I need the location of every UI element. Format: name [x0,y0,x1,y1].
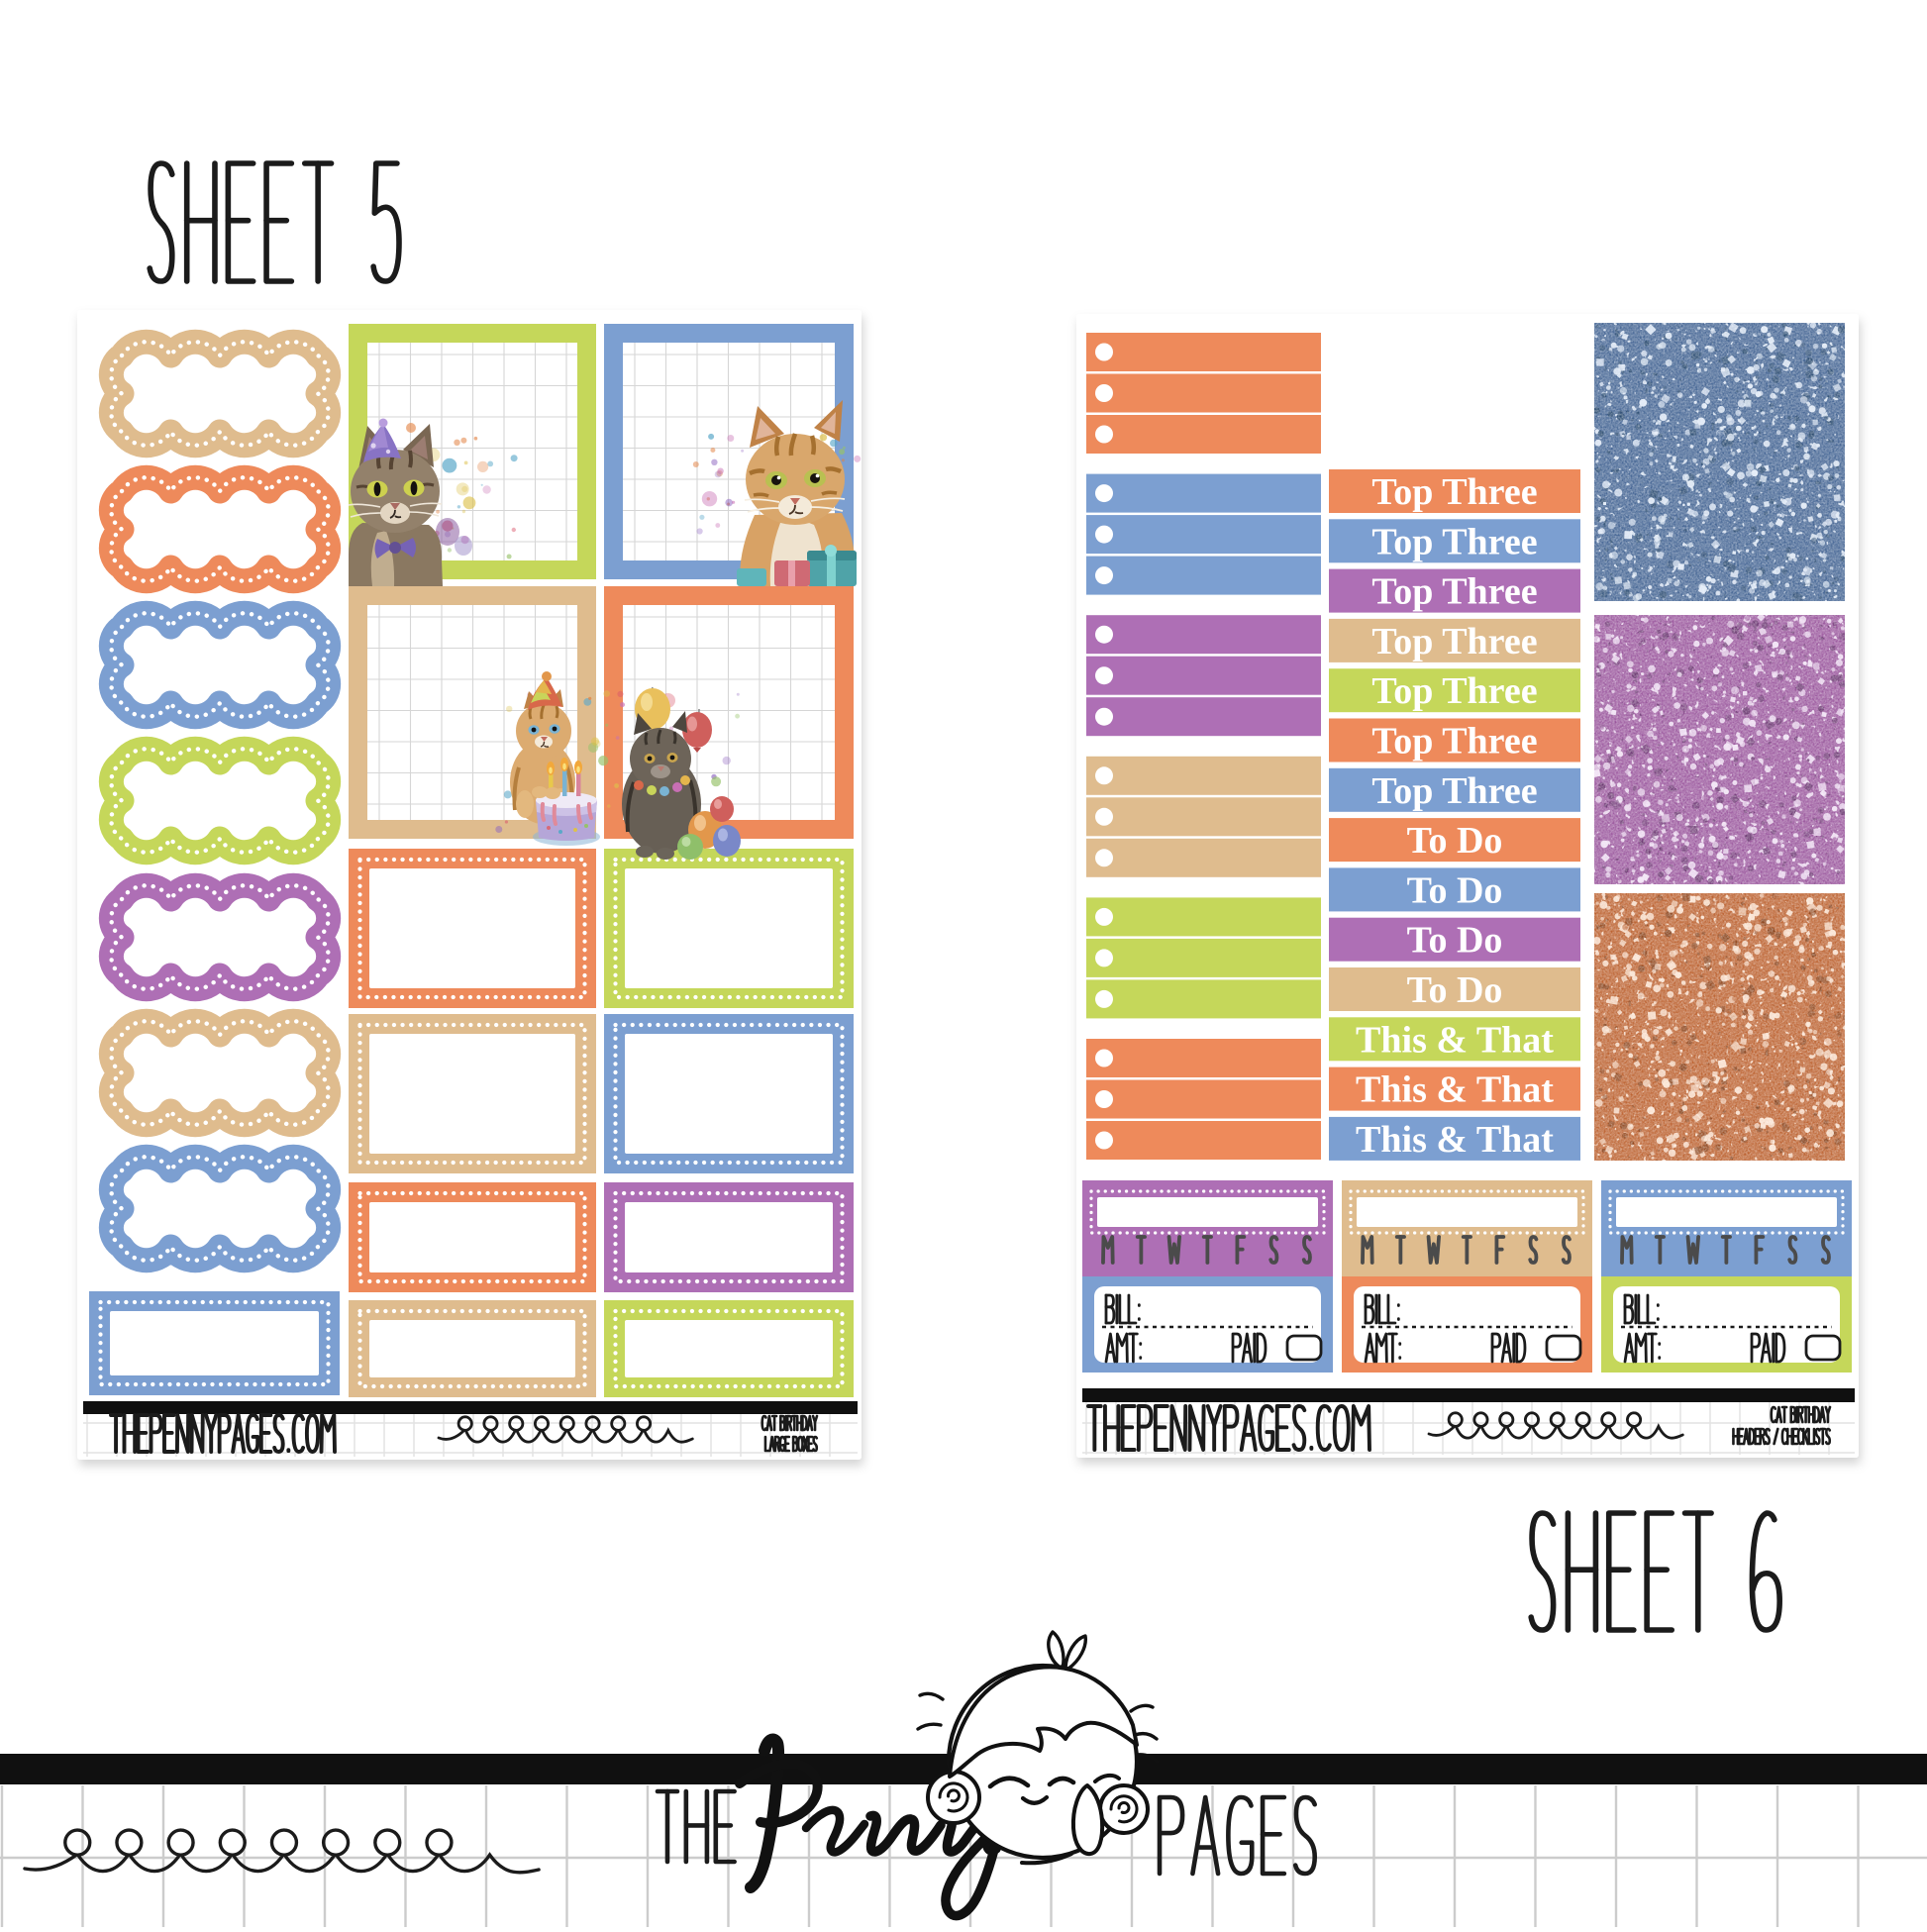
svg-text:Top Three: Top Three [1371,571,1537,613]
svg-text:Top Three: Top Three [1371,670,1537,712]
svg-text:Top Three: Top Three [1371,471,1537,513]
svg-text:Top Three: Top Three [1371,621,1537,662]
svg-text:This & That: This & That [1356,1019,1554,1061]
svg-text:To Do: To Do [1407,820,1503,862]
svg-text:To Do: To Do [1407,920,1503,962]
svg-text:Top Three: Top Three [1371,721,1537,763]
svg-text:This & That: This & That [1356,1069,1554,1111]
svg-text:To Do: To Do [1407,969,1503,1011]
svg-text:To Do: To Do [1407,869,1503,911]
svg-text:Top Three: Top Three [1371,521,1537,562]
svg-text:Top Three: Top Three [1371,770,1537,812]
svg-text:This & That: This & That [1356,1119,1554,1161]
